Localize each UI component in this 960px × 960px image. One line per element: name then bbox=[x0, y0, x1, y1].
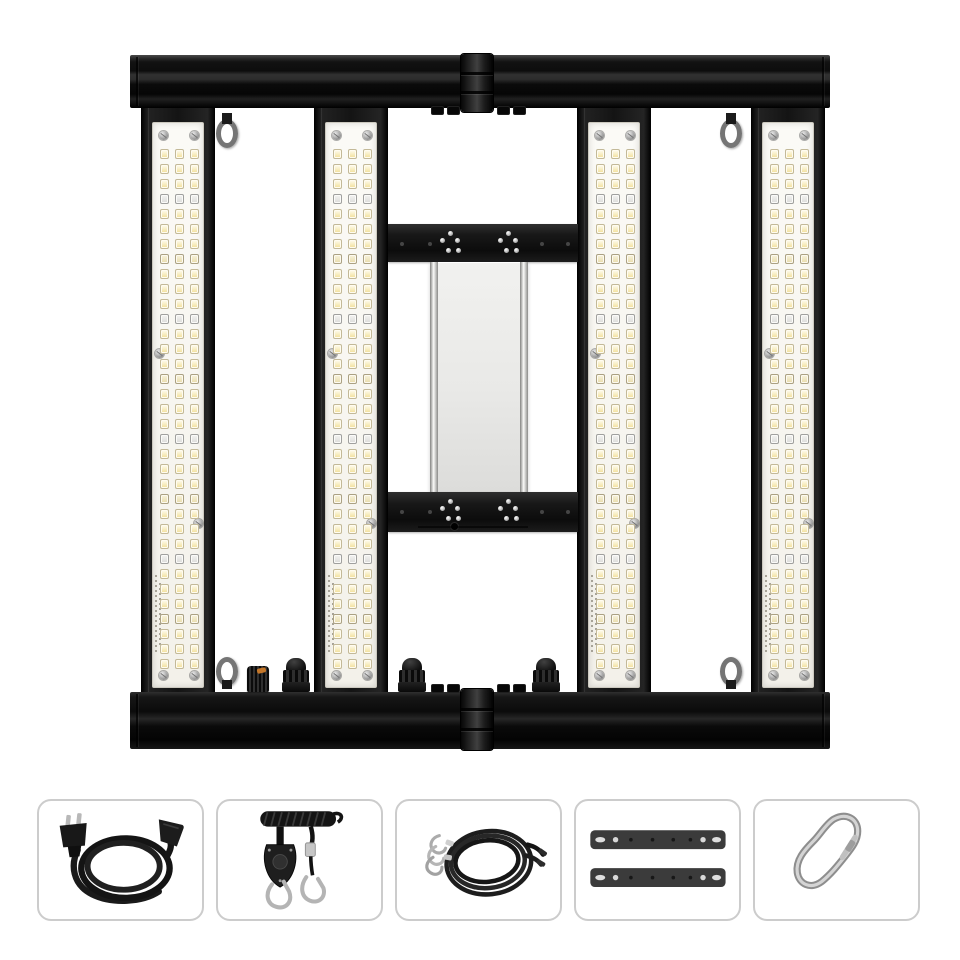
led-bar bbox=[751, 108, 825, 696]
led-chip bbox=[770, 194, 779, 204]
led-chip bbox=[785, 284, 794, 294]
led-chip bbox=[363, 359, 372, 369]
led-chip bbox=[175, 194, 184, 204]
led-chip bbox=[770, 614, 779, 624]
led-chip bbox=[626, 299, 635, 309]
led-chip bbox=[363, 644, 372, 654]
led-chip bbox=[611, 599, 620, 609]
bottom-fold-hinge bbox=[461, 689, 493, 750]
led-chip bbox=[626, 554, 635, 564]
led-chip bbox=[160, 434, 169, 444]
screw-icon bbox=[513, 238, 518, 243]
led-chip bbox=[160, 374, 169, 384]
led-chip bbox=[333, 644, 342, 654]
led-chip bbox=[785, 419, 794, 429]
led-chip bbox=[333, 254, 342, 264]
led-chip bbox=[770, 209, 779, 219]
led-chip bbox=[160, 449, 169, 459]
led-chip bbox=[611, 569, 620, 579]
led-chip bbox=[596, 389, 605, 399]
hanging-eye-bolt bbox=[216, 657, 238, 686]
led-chip bbox=[800, 479, 809, 489]
led-chip bbox=[770, 179, 779, 189]
led-chip bbox=[785, 389, 794, 399]
led-chip bbox=[175, 554, 184, 564]
led-chip bbox=[348, 494, 357, 504]
led-chip bbox=[160, 569, 169, 579]
bottom-rail-ports bbox=[498, 685, 525, 692]
screw-icon bbox=[363, 671, 372, 680]
led-chip bbox=[626, 254, 635, 264]
led-chip bbox=[348, 149, 357, 159]
led-chip bbox=[348, 539, 357, 549]
led-chip bbox=[175, 479, 184, 489]
led-chip bbox=[160, 329, 169, 339]
led-chip bbox=[770, 314, 779, 324]
led-chip bbox=[770, 434, 779, 444]
led-chip bbox=[333, 554, 342, 564]
accessory-thumbnail-mounting-brackets[interactable] bbox=[574, 799, 741, 921]
led-chip bbox=[611, 644, 620, 654]
led-chip bbox=[348, 404, 357, 414]
led-chip bbox=[190, 239, 199, 249]
led-chip bbox=[363, 209, 372, 219]
led-chip bbox=[175, 584, 184, 594]
led-chip bbox=[611, 389, 620, 399]
screw-icon bbox=[498, 506, 503, 511]
led-bar bbox=[141, 108, 215, 696]
led-chip bbox=[611, 299, 620, 309]
led-chip bbox=[333, 449, 342, 459]
led-bar bbox=[577, 108, 651, 696]
led-chip bbox=[333, 464, 342, 474]
led-chip bbox=[333, 659, 342, 669]
led-chip bbox=[175, 614, 184, 624]
led-chip bbox=[800, 149, 809, 159]
mount-hole bbox=[428, 510, 432, 514]
led-chip bbox=[190, 449, 199, 459]
mount-hole bbox=[566, 242, 570, 246]
led-chip bbox=[626, 284, 635, 294]
led-chip bbox=[175, 254, 184, 264]
bottom-rail-ports bbox=[432, 685, 459, 692]
led-chip bbox=[785, 299, 794, 309]
led-chip bbox=[160, 164, 169, 174]
led-chip bbox=[160, 599, 169, 609]
led-chip bbox=[363, 329, 372, 339]
top-rail-ports bbox=[498, 107, 525, 114]
led-chip bbox=[785, 629, 794, 639]
led-chip bbox=[611, 629, 620, 639]
led-chip bbox=[770, 524, 779, 534]
led-chip bbox=[175, 494, 184, 504]
led-chip bbox=[175, 629, 184, 639]
cable-gland bbox=[398, 658, 426, 692]
led-chip bbox=[800, 164, 809, 174]
screw-icon bbox=[504, 516, 509, 521]
led-chip bbox=[160, 239, 169, 249]
led-chip bbox=[611, 464, 620, 474]
led-chip bbox=[363, 314, 372, 324]
led-chip bbox=[800, 284, 809, 294]
led-chip bbox=[611, 344, 620, 354]
screw-icon bbox=[498, 238, 503, 243]
led-chip bbox=[363, 599, 372, 609]
led-chip bbox=[363, 539, 372, 549]
led-chip bbox=[770, 374, 779, 384]
crossbar-top bbox=[388, 224, 578, 262]
led-chip bbox=[785, 344, 794, 354]
led-chip bbox=[333, 299, 342, 309]
accessory-thumbnail-steel-cable-hangers[interactable] bbox=[395, 799, 562, 921]
driver-box bbox=[430, 262, 528, 492]
led-chip bbox=[800, 344, 809, 354]
led-chip bbox=[785, 149, 794, 159]
led-chip bbox=[770, 449, 779, 459]
led-chip bbox=[626, 464, 635, 474]
led-chip bbox=[175, 374, 184, 384]
led-chip bbox=[363, 254, 372, 264]
carabiner-icon bbox=[759, 805, 914, 915]
led-chip bbox=[333, 494, 342, 504]
screw-icon bbox=[332, 671, 341, 680]
led-chip bbox=[175, 569, 184, 579]
led-chip bbox=[363, 449, 372, 459]
mount-hole bbox=[540, 242, 544, 246]
led-chip bbox=[611, 179, 620, 189]
led-chip bbox=[626, 239, 635, 249]
led-chip bbox=[363, 299, 372, 309]
led-chip bbox=[785, 179, 794, 189]
led-chip bbox=[611, 404, 620, 414]
led-chip bbox=[363, 434, 372, 444]
dimmer-knob bbox=[247, 666, 269, 692]
led-chip bbox=[611, 149, 620, 159]
led-chip bbox=[785, 554, 794, 564]
led-chip bbox=[785, 584, 794, 594]
led-chip bbox=[190, 659, 199, 669]
led-chip bbox=[785, 569, 794, 579]
accessory-thumbnail-carabiner-clip[interactable] bbox=[753, 799, 920, 921]
led-chip bbox=[785, 524, 794, 534]
led-chip bbox=[800, 524, 809, 534]
led-chip bbox=[190, 614, 199, 624]
led-chip bbox=[363, 149, 372, 159]
led-chip bbox=[333, 614, 342, 624]
led-chip bbox=[785, 359, 794, 369]
led-chip bbox=[770, 269, 779, 279]
led-chip bbox=[190, 434, 199, 444]
led-chip bbox=[770, 359, 779, 369]
led-chip bbox=[770, 329, 779, 339]
led-chip bbox=[160, 284, 169, 294]
mounting-bracket-icon bbox=[580, 805, 735, 915]
led-chip bbox=[626, 659, 635, 669]
led-chip bbox=[596, 179, 605, 189]
led-chip bbox=[333, 569, 342, 579]
led-chip bbox=[348, 419, 357, 429]
led-chip bbox=[175, 314, 184, 324]
led-chip bbox=[611, 479, 620, 489]
led-bar bbox=[314, 108, 388, 696]
led-chip bbox=[333, 584, 342, 594]
led-chip bbox=[800, 464, 809, 474]
led-chip bbox=[348, 239, 357, 249]
led-chip bbox=[800, 224, 809, 234]
led-chip bbox=[160, 614, 169, 624]
led-chip bbox=[785, 434, 794, 444]
led-chip bbox=[333, 284, 342, 294]
screw-icon bbox=[363, 131, 372, 140]
screw-icon bbox=[595, 671, 604, 680]
screw-icon bbox=[626, 671, 635, 680]
led-chip bbox=[190, 329, 199, 339]
led-chip bbox=[348, 329, 357, 339]
led-chip bbox=[160, 269, 169, 279]
accessory-thumbnail-power-cord[interactable] bbox=[37, 799, 204, 921]
led-chip bbox=[785, 644, 794, 654]
led-chip bbox=[333, 509, 342, 519]
led-chip bbox=[190, 164, 199, 174]
led-chip bbox=[596, 464, 605, 474]
led-chip bbox=[175, 509, 184, 519]
led-chip bbox=[363, 524, 372, 534]
led-chip bbox=[770, 164, 779, 174]
led-chip bbox=[333, 359, 342, 369]
led-chip bbox=[160, 149, 169, 159]
led-chip bbox=[800, 389, 809, 399]
led-chip bbox=[596, 269, 605, 279]
led-chip bbox=[363, 374, 372, 384]
led-chip bbox=[785, 314, 794, 324]
led-chip bbox=[333, 314, 342, 324]
led-chip bbox=[785, 269, 794, 279]
led-chip bbox=[596, 254, 605, 264]
led-chip bbox=[190, 554, 199, 564]
led-chip bbox=[363, 164, 372, 174]
led-chip bbox=[175, 449, 184, 459]
led-chip bbox=[175, 434, 184, 444]
led-chip bbox=[596, 194, 605, 204]
led-chip bbox=[363, 344, 372, 354]
led-chip bbox=[333, 344, 342, 354]
led-chip bbox=[363, 419, 372, 429]
led-chip bbox=[348, 659, 357, 669]
led-chip bbox=[770, 464, 779, 474]
led-chip bbox=[785, 659, 794, 669]
screw-icon bbox=[440, 506, 445, 511]
led-chip bbox=[333, 239, 342, 249]
led-chip bbox=[333, 269, 342, 279]
led-chip bbox=[175, 329, 184, 339]
screw-icon bbox=[446, 248, 451, 253]
led-chip bbox=[363, 569, 372, 579]
led-chip bbox=[160, 539, 169, 549]
led-chip bbox=[190, 254, 199, 264]
led-chip bbox=[175, 344, 184, 354]
led-chip bbox=[770, 389, 779, 399]
led-chip bbox=[333, 629, 342, 639]
led-chip bbox=[175, 404, 184, 414]
led-chip bbox=[190, 359, 199, 369]
led-chip bbox=[160, 194, 169, 204]
led-chip bbox=[800, 269, 809, 279]
led-chip bbox=[190, 584, 199, 594]
led-chip bbox=[800, 569, 809, 579]
led-chip bbox=[363, 404, 372, 414]
led-chip bbox=[348, 599, 357, 609]
led-chip bbox=[348, 224, 357, 234]
led-chip bbox=[611, 239, 620, 249]
led-chip bbox=[175, 599, 184, 609]
led-chip bbox=[800, 329, 809, 339]
led-chip bbox=[611, 284, 620, 294]
led-chip bbox=[626, 389, 635, 399]
led-chip bbox=[596, 434, 605, 444]
led-chip bbox=[596, 569, 605, 579]
screw-icon bbox=[446, 516, 451, 521]
led-chip bbox=[348, 374, 357, 384]
led-chip bbox=[363, 194, 372, 204]
led-chip bbox=[175, 524, 184, 534]
led-chip bbox=[160, 464, 169, 474]
led-chip bbox=[160, 644, 169, 654]
led-chip bbox=[785, 479, 794, 489]
hanging-eye-bolt bbox=[720, 657, 742, 686]
led-chip bbox=[785, 239, 794, 249]
led-chip bbox=[333, 599, 342, 609]
led-chip bbox=[363, 554, 372, 564]
led-chip bbox=[348, 434, 357, 444]
led-chip bbox=[800, 509, 809, 519]
led-chip bbox=[160, 419, 169, 429]
led-chip bbox=[596, 584, 605, 594]
accessory-thumbnail-rope-ratchet-hangers[interactable] bbox=[216, 799, 383, 921]
led-chip bbox=[596, 404, 605, 414]
led-chip bbox=[175, 209, 184, 219]
led-chip bbox=[800, 554, 809, 564]
screw-icon bbox=[626, 131, 635, 140]
led-chip bbox=[800, 419, 809, 429]
led-chip bbox=[363, 584, 372, 594]
led-chip bbox=[160, 344, 169, 354]
led-chip bbox=[190, 599, 199, 609]
led-chip bbox=[785, 539, 794, 549]
led-chip bbox=[770, 599, 779, 609]
led-chip bbox=[626, 419, 635, 429]
led-chip bbox=[800, 434, 809, 444]
led-chip bbox=[626, 194, 635, 204]
crossbar-slot bbox=[418, 526, 528, 528]
led-chip bbox=[785, 614, 794, 624]
led-chip bbox=[190, 344, 199, 354]
rope-ratchet-icon bbox=[222, 805, 377, 915]
led-chip bbox=[626, 569, 635, 579]
led-chip bbox=[626, 359, 635, 369]
led-chip bbox=[611, 509, 620, 519]
led-chip bbox=[611, 419, 620, 429]
led-chip bbox=[626, 224, 635, 234]
screw-icon bbox=[514, 248, 519, 253]
led-chip bbox=[770, 494, 779, 504]
led-chip bbox=[596, 614, 605, 624]
screw-icon bbox=[440, 238, 445, 243]
led-chip bbox=[175, 464, 184, 474]
led-board bbox=[762, 122, 814, 688]
screw-icon bbox=[595, 131, 604, 140]
led-chip bbox=[626, 629, 635, 639]
led-chip bbox=[611, 659, 620, 669]
led-chip bbox=[190, 569, 199, 579]
led-chip bbox=[596, 284, 605, 294]
led-chip bbox=[190, 194, 199, 204]
led-chip bbox=[596, 239, 605, 249]
led-chip bbox=[611, 449, 620, 459]
led-chip bbox=[160, 389, 169, 399]
led-chip bbox=[626, 404, 635, 414]
led-chip bbox=[160, 494, 169, 504]
led-chip bbox=[333, 224, 342, 234]
led-chip bbox=[348, 344, 357, 354]
led-chip bbox=[363, 614, 372, 624]
led-chip bbox=[348, 164, 357, 174]
led-chip bbox=[626, 494, 635, 504]
led-chip bbox=[800, 209, 809, 219]
screw-icon bbox=[514, 516, 519, 521]
led-chip bbox=[348, 509, 357, 519]
led-chip bbox=[160, 404, 169, 414]
led-chip bbox=[785, 254, 794, 264]
led-chip bbox=[770, 644, 779, 654]
led-chip bbox=[626, 329, 635, 339]
led-board bbox=[588, 122, 640, 688]
led-chip bbox=[785, 494, 794, 504]
led-chip bbox=[175, 164, 184, 174]
led-chip bbox=[190, 149, 199, 159]
led-chip bbox=[160, 554, 169, 564]
led-chip bbox=[770, 479, 779, 489]
led-chip bbox=[175, 659, 184, 669]
led-chip bbox=[770, 284, 779, 294]
led-chip bbox=[190, 209, 199, 219]
led-chip bbox=[785, 224, 794, 234]
led-chip bbox=[596, 449, 605, 459]
led-chip bbox=[785, 464, 794, 474]
led-chip bbox=[348, 644, 357, 654]
led-chip bbox=[770, 149, 779, 159]
led-chip bbox=[160, 254, 169, 264]
led-chip bbox=[175, 359, 184, 369]
screw-icon bbox=[332, 131, 341, 140]
led-chip bbox=[333, 164, 342, 174]
led-chip bbox=[160, 479, 169, 489]
led-chip bbox=[596, 359, 605, 369]
led-chip bbox=[626, 314, 635, 324]
led-chip bbox=[800, 404, 809, 414]
led-chip bbox=[611, 329, 620, 339]
led-chip bbox=[363, 179, 372, 189]
screw-icon bbox=[190, 671, 199, 680]
led-chip bbox=[626, 524, 635, 534]
led-chip bbox=[770, 584, 779, 594]
led-chip bbox=[596, 344, 605, 354]
led-chip bbox=[348, 269, 357, 279]
led-chip bbox=[175, 539, 184, 549]
led-chip bbox=[626, 479, 635, 489]
led-chip bbox=[333, 194, 342, 204]
led-chip bbox=[770, 629, 779, 639]
screw-icon bbox=[504, 248, 509, 253]
